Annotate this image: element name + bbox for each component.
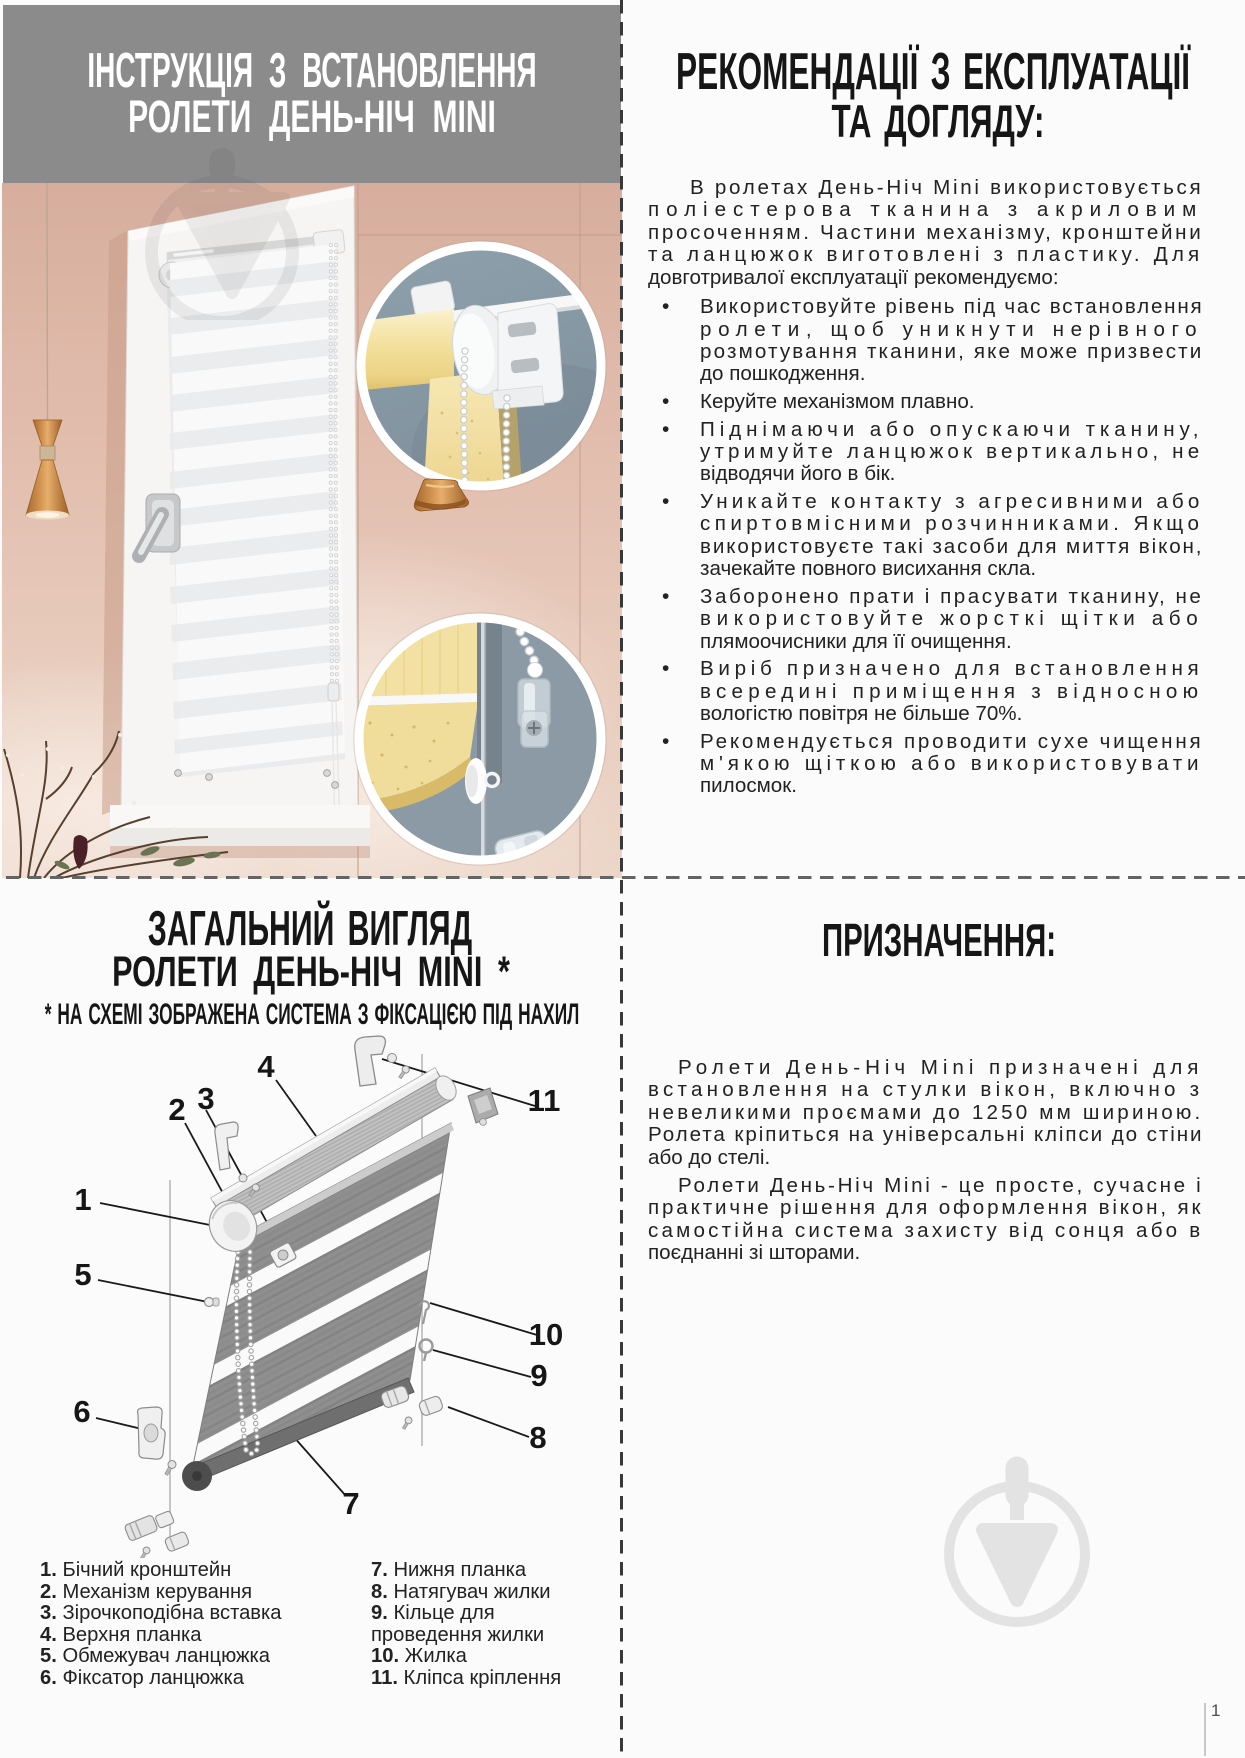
svg-text:8: 8	[529, 1420, 546, 1455]
svg-text:10: 10	[529, 1317, 563, 1352]
svg-text:11: 11	[528, 1083, 561, 1118]
svg-text:7: 7	[342, 1486, 359, 1521]
svg-text:5: 5	[74, 1257, 91, 1292]
svg-text:6: 6	[73, 1394, 90, 1429]
svg-text:1: 1	[74, 1182, 91, 1217]
svg-text:9: 9	[530, 1358, 547, 1393]
svg-text:4: 4	[257, 1049, 275, 1084]
svg-text:2: 2	[168, 1092, 185, 1127]
svg-text:3: 3	[197, 1081, 214, 1116]
